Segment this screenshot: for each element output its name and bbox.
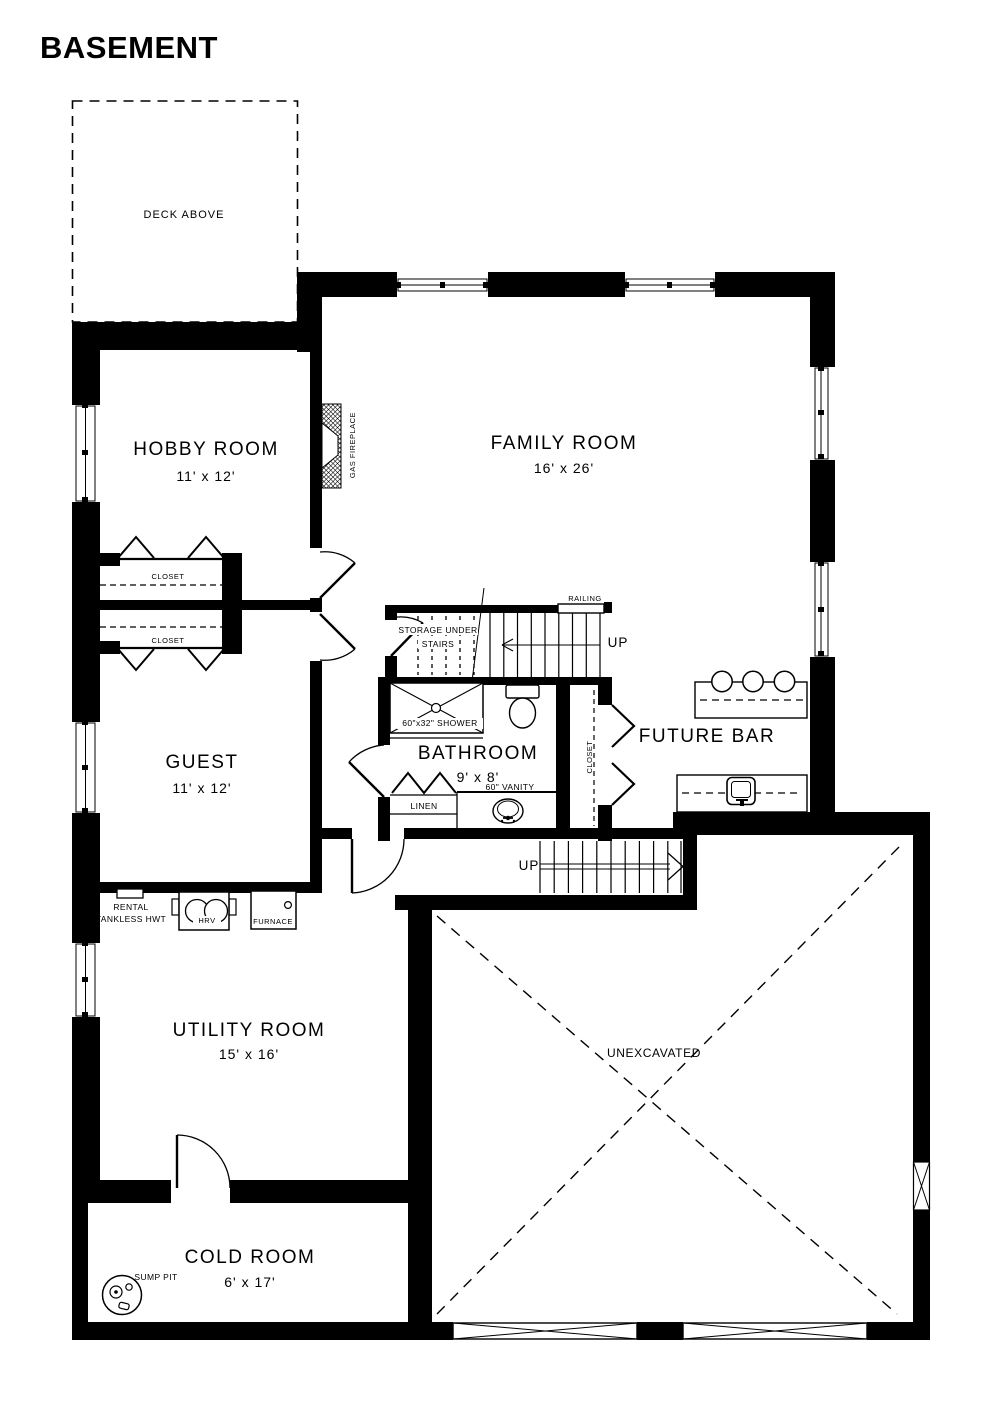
deck-label: DECK ABOVE [144, 209, 225, 221]
label-backgrounds [193, 624, 478, 926]
bath-closet-label: CLOSET [585, 740, 594, 773]
cold-room-dims: 6' x 17' [224, 1274, 275, 1290]
tankless-hwt [117, 889, 143, 898]
up-entry-label: UP [519, 858, 540, 873]
bar-counter [695, 671, 807, 718]
window-family-top-1 [396, 272, 488, 297]
gas-fireplace [322, 404, 341, 488]
sump-pit-label: SUMP PIT [134, 1272, 177, 1282]
window-family-top-2 [624, 272, 715, 297]
hobby-room-name: HOBBY ROOM [133, 439, 279, 460]
closet-upper-label: CLOSET [151, 572, 184, 581]
labels: BASEMENT DECK ABOVE HOBBY ROOM 11' x 12'… [40, 30, 775, 1290]
hrv-label: HRV [198, 916, 215, 925]
floor-plan-page: BASEMENT DECK ABOVE HOBBY ROOM 11' x 12'… [0, 0, 1003, 1413]
family-room-dims: 16' x 26' [534, 460, 594, 476]
family-room-name: FAMILY ROOM [491, 433, 638, 454]
furnace-label: FURNACE [253, 917, 293, 926]
vanity-label: 60" VANITY [486, 782, 535, 792]
utility-room-name: UTILITY ROOM [173, 1020, 326, 1041]
beam-box-1 [453, 1323, 637, 1339]
hobby-room-dims: 11' x 12' [176, 468, 235, 484]
future-bar-name: FUTURE BAR [639, 726, 775, 747]
storage-label-line2: STAIRS [422, 639, 454, 649]
window-hobby [72, 403, 100, 502]
toilet [506, 685, 539, 728]
rental-label-line1: RENTAL [113, 902, 148, 912]
guest-room-dims: 11' x 12' [172, 780, 231, 796]
bathroom-name: BATHROOM [418, 743, 538, 764]
storage-label-line1: STORAGE UNDER [398, 625, 477, 635]
unexcavated-label: UNEXCAVATED [607, 1046, 701, 1060]
stairs-entry [540, 841, 683, 893]
beam-box-2 [683, 1323, 867, 1339]
bar-stool [774, 671, 794, 691]
window-family-right-1 [810, 366, 835, 460]
bar-stool [712, 671, 732, 691]
utility-room-dims: 15' x 16' [219, 1046, 279, 1062]
railing-label: RAILING [568, 594, 602, 603]
vent-box [914, 1162, 930, 1210]
shower [385, 683, 483, 738]
rental-label-line2: TANKLESS HWT [96, 914, 166, 924]
up-main-label: UP [608, 635, 629, 650]
gas-fireplace-label: GAS FIREPLACE [348, 412, 357, 478]
window-utility [72, 941, 100, 1017]
closet-lower-label: CLOSET [151, 636, 184, 645]
page-title: BASEMENT [40, 30, 218, 65]
shower-label: 60"x32" SHOWER [402, 718, 477, 728]
unexcavated-area [437, 847, 930, 1339]
guest-room-name: GUEST [166, 752, 239, 773]
window-family-right-2 [810, 561, 835, 657]
vanity [457, 792, 556, 823]
bar-sink-counter [677, 775, 807, 812]
window-guest [72, 720, 100, 813]
closet-lower [100, 627, 224, 670]
floor-plan-canvas: BASEMENT DECK ABOVE HOBBY ROOM 11' x 12'… [0, 0, 1003, 1413]
bar-stool [743, 671, 763, 691]
linen-label: LINEN [410, 801, 437, 811]
cold-room-name: COLD ROOM [185, 1247, 316, 1268]
